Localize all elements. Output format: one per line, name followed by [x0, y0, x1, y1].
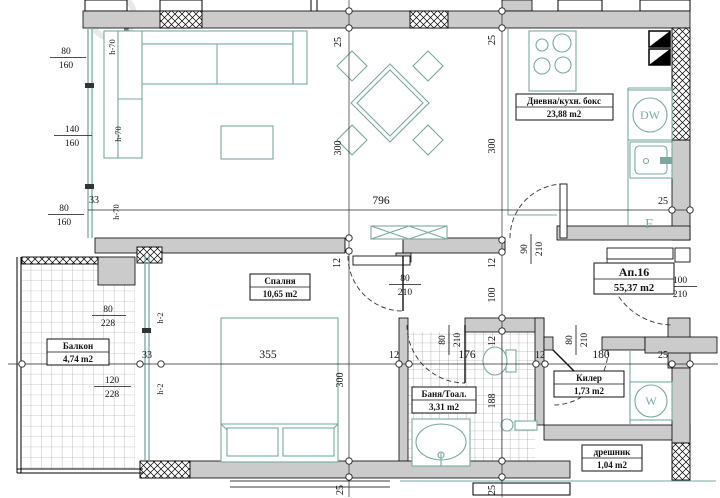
dim-wall: 12 — [487, 336, 498, 346]
dim-wall: 25 — [658, 196, 668, 207]
wardrobe-name: дрешник — [594, 447, 632, 457]
wall-stub — [311, 0, 317, 11]
dim-bath-width: 176 — [458, 349, 476, 361]
hall-door-leaf — [560, 184, 567, 238]
wardrobe-label: дрешник 1,04 m2 — [582, 445, 642, 471]
dining-set — [337, 51, 443, 155]
closet-label: Килер 1,73 m2 — [554, 371, 624, 397]
balcony-tiles — [22, 264, 135, 469]
svg-text:160: 160 — [65, 139, 80, 149]
balcony-corner-wall — [98, 257, 135, 285]
svg-text:120: 120 — [105, 376, 120, 386]
dim-bedroom-height: 300 — [335, 373, 346, 388]
svg-text:80: 80 — [565, 335, 575, 345]
floor-plan-page: Р — [0, 0, 720, 498]
dim-wall: 33 — [142, 350, 152, 361]
window-dim-80-160b: 80 160 — [48, 204, 84, 228]
svg-text:160: 160 — [59, 61, 74, 71]
outer-stubs — [85, 0, 690, 11]
sill-height-label: h-70 — [111, 204, 121, 220]
wall-stub — [160, 0, 202, 11]
living-furniture — [104, 31, 447, 239]
kitchen-sink — [630, 142, 672, 178]
hatched-right-wall — [672, 28, 690, 140]
svg-text:80: 80 — [400, 274, 410, 284]
balcony-name: Балкон — [63, 341, 93, 351]
bedroom-door-dim-80-210: 80 210 — [389, 274, 421, 298]
dim-wall: 25 — [333, 37, 344, 47]
bath-label: Баня/Тоал. 3,31 m2 — [412, 387, 476, 413]
svg-text:100: 100 — [673, 276, 688, 286]
closet-name: Килер — [576, 373, 602, 383]
sill-height-label: h-70 — [107, 39, 117, 55]
svg-text:160: 160 — [57, 218, 72, 228]
washer-label: W — [645, 394, 657, 408]
bedroom-area: 10,65 m2 — [263, 289, 298, 299]
svg-text:80: 80 — [61, 47, 71, 57]
coffee-table — [221, 126, 273, 159]
living-room-label: Дневна/кухн. бокс 23,88 m2 — [516, 94, 613, 120]
bath-left-wall — [399, 318, 408, 465]
lower-rail — [230, 481, 390, 487]
entry-pillar-h — [645, 337, 717, 353]
dim-bath-height: 188 — [487, 394, 498, 409]
dim-room-height: 300 — [333, 141, 344, 156]
svg-text:210: 210 — [398, 288, 413, 298]
svg-text:210: 210 — [535, 242, 545, 257]
apartment-number: Ап.16 — [619, 265, 650, 279]
closet-bottom-wall — [544, 425, 690, 440]
floor-plan-drawing: Р — [0, 0, 720, 498]
bath-right-wall — [535, 318, 544, 425]
svg-text:210: 210 — [673, 290, 688, 300]
dim-wall: 12 — [332, 258, 343, 268]
dim-hall: 100 — [487, 288, 498, 303]
svg-text:140: 140 — [65, 125, 80, 135]
kitchen-bottom-wall — [557, 226, 690, 240]
svg-text:210: 210 — [453, 333, 463, 348]
chair — [337, 51, 367, 81]
dining-table — [351, 64, 429, 142]
fridge-symbol — [649, 31, 670, 65]
dim-wall: 25 — [487, 485, 498, 495]
toilet — [483, 347, 516, 375]
dim-wall: 25 — [487, 35, 498, 45]
hall-door-arc — [510, 184, 564, 238]
wall-stub — [640, 0, 690, 11]
chair — [413, 51, 443, 81]
pillow — [283, 428, 334, 456]
living-window-west — [88, 28, 92, 238]
balcony-area: 4,74 m2 — [63, 354, 93, 364]
svg-text:210: 210 — [580, 333, 590, 348]
bottom-wall — [140, 461, 570, 478]
kitchen-fixtures: DW F — [508, 28, 672, 232]
entry-door-frame — [675, 248, 690, 262]
bath-name: Баня/Тоал. — [422, 389, 467, 399]
dishwasher-label: DW — [640, 108, 661, 122]
wall-stub — [558, 0, 602, 11]
right-wall-mid — [672, 140, 690, 240]
dim-closet-width: 180 — [592, 349, 610, 361]
svg-text:228: 228 — [105, 390, 120, 400]
window-mullion — [142, 328, 151, 333]
svg-text:80: 80 — [103, 305, 113, 315]
living-room-area: 23,88 m2 — [547, 109, 582, 119]
balcony-parapet-strip — [22, 257, 98, 264]
bedroom-label: Спалня 10,65 m2 — [250, 274, 310, 300]
apartment-area: 55,37 m2 — [614, 283, 654, 294]
dim-wall: 33 — [89, 195, 99, 206]
sill-height-label: h-2 — [155, 312, 165, 323]
apartment-label: Ап.16 55,37 m2 — [594, 263, 674, 294]
sofa — [104, 31, 307, 158]
dim-living-width: 796 — [372, 195, 390, 207]
shower-mixer — [501, 419, 537, 431]
window-dim-80-160: 80 160 — [50, 47, 86, 71]
hatched-column — [410, 11, 448, 28]
closet-jamb-left — [544, 337, 553, 350]
bath-area: 3,31 m2 — [429, 402, 459, 412]
bedroom-name: Спалня — [264, 276, 295, 286]
window-mullion — [85, 83, 94, 88]
dim-wall: 25 — [335, 485, 346, 495]
tv-console — [371, 226, 447, 239]
dim-wall: 12 — [535, 350, 545, 361]
sill-height-label: h-2 — [155, 383, 165, 394]
svg-text:90: 90 — [520, 244, 530, 254]
fridge-label: F — [645, 217, 653, 232]
wall-stub — [502, 0, 532, 11]
closet-area: 1,73 m2 — [574, 386, 604, 396]
dim-wall: 12 — [389, 350, 399, 361]
bathtub — [412, 419, 470, 466]
window-dim-140-160: 140 160 — [54, 125, 92, 149]
balcony-label: Балкон 4,74 m2 — [47, 339, 109, 365]
hatched-column — [140, 461, 190, 478]
dim-bedroom-width: 355 — [259, 349, 277, 361]
hatched-column — [672, 443, 690, 480]
hall-door-dim-90-210: 90 210 — [520, 234, 545, 264]
closet-door-dim-80-210: 80 210 — [565, 325, 590, 355]
chair — [413, 125, 443, 155]
hatched-column — [160, 11, 202, 28]
entry-door-leaf — [607, 248, 673, 259]
svg-text:80: 80 — [438, 335, 448, 345]
dim-wall: 25 — [658, 350, 668, 361]
sill-height-label: h-70 — [113, 126, 123, 142]
svg-text:80: 80 — [59, 204, 69, 214]
bedroom-door-opening — [345, 237, 403, 254]
pillow — [227, 428, 278, 456]
window-mullion — [85, 184, 94, 189]
dim-wall: 12 — [487, 258, 498, 268]
tv-cabinet — [353, 256, 410, 265]
bedroom-furniture — [221, 318, 338, 462]
wall-stub — [85, 0, 127, 11]
svg-text:228: 228 — [101, 319, 116, 329]
dim-kitchen-height: 300 — [487, 139, 498, 154]
faucet — [660, 157, 672, 164]
living-room-name: Дневна/кухн. бокс — [527, 96, 601, 106]
wardrobe-area: 1,04 m2 — [597, 460, 627, 470]
